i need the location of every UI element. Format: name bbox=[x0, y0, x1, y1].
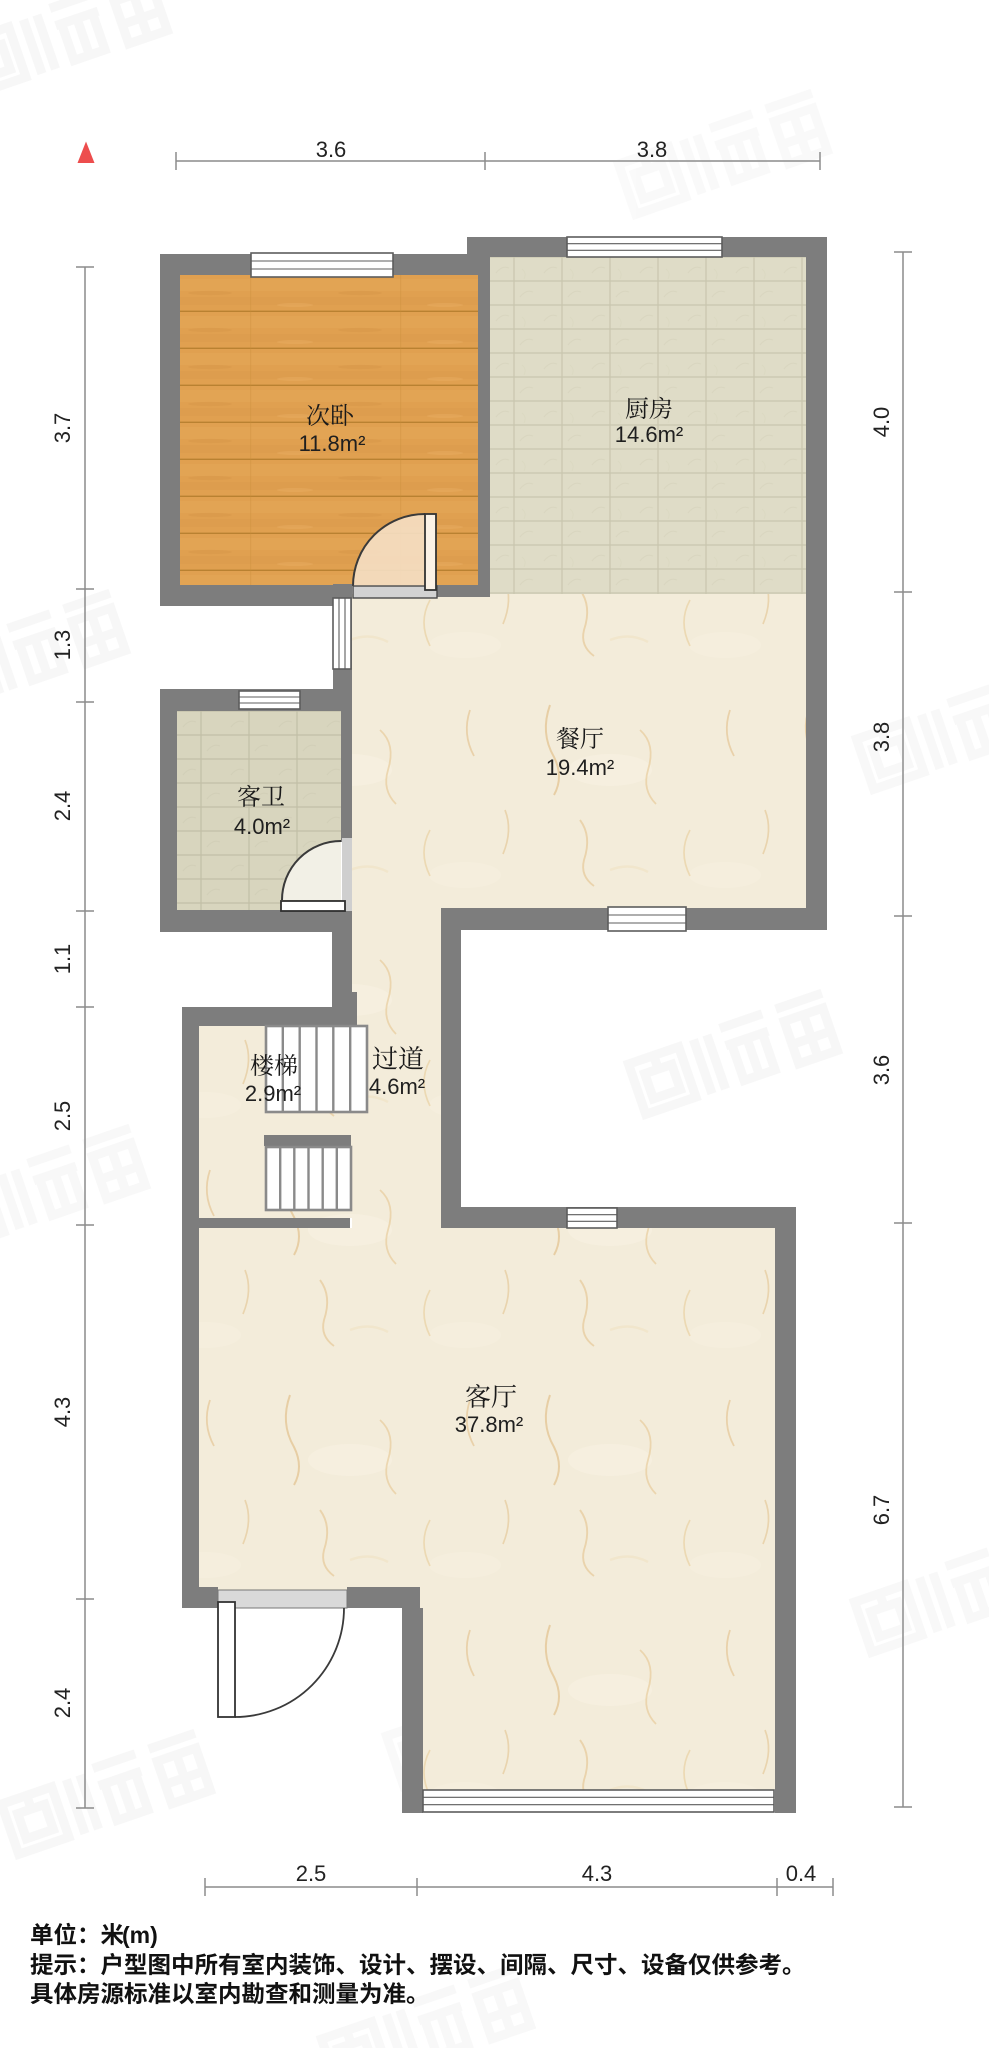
svg-text:14.6m²: 14.6m² bbox=[615, 422, 683, 447]
svg-text:4.3: 4.3 bbox=[582, 1861, 613, 1886]
svg-text:4.3: 4.3 bbox=[50, 1397, 75, 1428]
svg-text:6.7: 6.7 bbox=[869, 1495, 894, 1526]
svg-text:4.6m²: 4.6m² bbox=[369, 1074, 425, 1099]
svg-text:37.8m²: 37.8m² bbox=[455, 1412, 523, 1437]
svg-text:(m): (m) bbox=[122, 1922, 158, 1948]
svg-text:11.8m²: 11.8m² bbox=[299, 431, 366, 456]
svg-text:3.7: 3.7 bbox=[50, 413, 75, 444]
svg-text:1.3: 1.3 bbox=[50, 630, 75, 661]
svg-text:2.4: 2.4 bbox=[50, 1688, 75, 1719]
svg-text:3.6: 3.6 bbox=[869, 1055, 894, 1086]
svg-text:4.0: 4.0 bbox=[869, 407, 894, 438]
svg-text:19.4m²: 19.4m² bbox=[546, 755, 614, 780]
svg-text:3.8: 3.8 bbox=[869, 722, 894, 753]
svg-text:3.8: 3.8 bbox=[637, 137, 668, 162]
svg-text:2.9m²: 2.9m² bbox=[245, 1081, 301, 1106]
svg-text:2.4: 2.4 bbox=[50, 791, 75, 822]
svg-text:3.6: 3.6 bbox=[316, 137, 347, 162]
svg-text:2.5: 2.5 bbox=[50, 1101, 75, 1132]
svg-text:0.4: 0.4 bbox=[786, 1861, 817, 1886]
svg-text:1.1: 1.1 bbox=[50, 944, 75, 975]
svg-text:2.5: 2.5 bbox=[296, 1861, 327, 1886]
svg-text:4.0m²: 4.0m² bbox=[234, 814, 290, 839]
